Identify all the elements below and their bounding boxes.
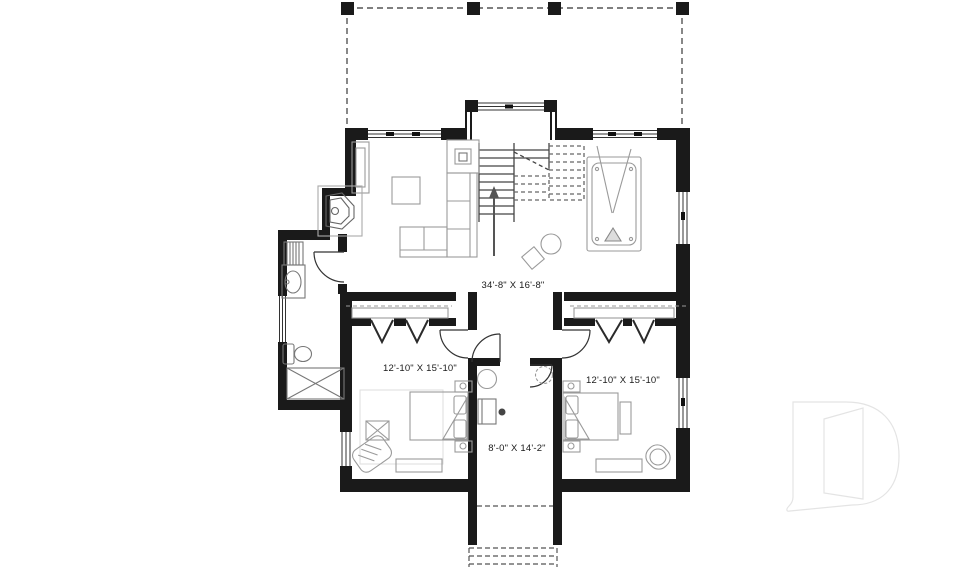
window [342,432,350,466]
bedroom-left-dimension: 12'-10" X 15'-10" [383,363,457,374]
window [280,296,286,342]
desk-chair [499,409,506,416]
desk [478,399,496,424]
round-table-and-chair [522,234,561,269]
sectional-sofa [400,173,477,257]
floor-plan-page: 34'-8" X 16'-8" 12'-10" X 15'-10" 12'-10… [0,0,960,569]
deck-outline [347,8,682,126]
family-room-dimension: 34'-8" X 16'-8" [481,280,544,291]
corner-table [447,140,479,173]
toilet [283,344,312,364]
floor-plan: 34'-8" X 16'-8" 12'-10" X 15'-10" 12'-10… [0,0,960,569]
nightstand [563,441,580,452]
window [478,103,544,110]
window [679,192,687,244]
stair-up-arrow [489,186,499,256]
bench [620,402,631,434]
closet-left [346,306,452,318]
side-table [366,421,389,440]
bedroom-right-dimension: 12'-10" X 15'-10" [586,375,660,386]
deck-posts [341,2,689,15]
window [368,131,441,138]
closet-right [570,306,688,318]
bedroom-left-door [440,330,468,358]
nightstand [563,381,580,392]
window [679,378,687,428]
shower [287,368,344,399]
bathroom-shelves [284,242,303,265]
bed-left [360,390,468,464]
staircase [479,143,584,256]
bed-right [563,393,618,440]
bedroom-right-door [562,330,590,358]
corner-chair [642,441,675,474]
hall-door-right [530,365,552,387]
bathroom-door [314,252,344,282]
ottoman [392,177,420,204]
hall-dimension: 8'-0" X 14'-2" [488,443,546,454]
bifold-doors [371,320,654,342]
builder-logo-D [787,402,899,511]
entry-steps [469,506,557,567]
walls [278,100,690,545]
dresser [596,459,642,472]
hall-round-table [478,370,497,389]
pool-table [587,146,641,251]
dresser [396,459,442,472]
window [593,131,657,138]
hall-door-left [472,334,500,362]
